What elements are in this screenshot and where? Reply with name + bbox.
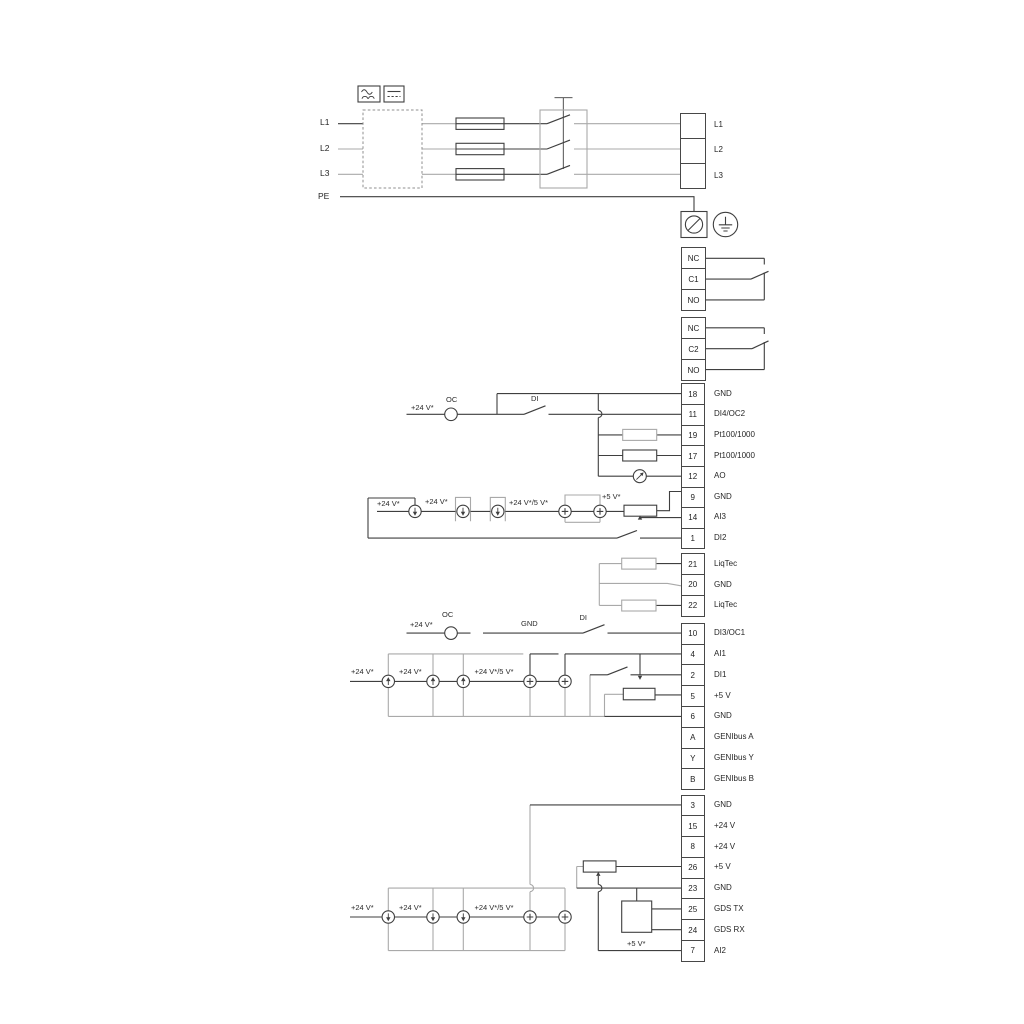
terminal-cell-22: 22 <box>681 595 706 617</box>
annotation-24v-5v: +24 V*/5 V* <box>475 903 514 912</box>
annotation-oc: OC <box>442 610 453 619</box>
terminal-number: 24 <box>688 926 697 935</box>
terminal-cell-20: 20 <box>681 574 706 596</box>
relay1-c1-cell: C1 <box>681 268 706 290</box>
terminal-label-4: AI1 <box>714 649 726 659</box>
terminal-number: 12 <box>688 472 697 481</box>
terminal-label-9: GND <box>714 492 732 502</box>
terminal-label-15: +24 V <box>714 821 735 831</box>
output-label-l3: L3 <box>714 171 723 181</box>
terminal-number: 1 <box>691 534 695 543</box>
annotation-24v: +24 V* <box>399 667 422 676</box>
input-label-pe: PE <box>318 191 329 201</box>
terminal-cell-l1-out <box>680 113 706 139</box>
terminal-cell-l3-out <box>680 163 706 189</box>
annotation-5v: +5 V* <box>627 939 646 948</box>
terminal-cell-6: 6 <box>681 706 706 728</box>
terminal-label-a: GENIbus A <box>714 732 754 742</box>
terminal-label-23: GND <box>714 883 732 893</box>
relay1-no-cell: NO <box>681 289 706 311</box>
relay2-no-label: NO <box>688 366 700 375</box>
terminal-cell-23: 23 <box>681 878 706 900</box>
terminal-label-5: +5 V <box>714 691 731 701</box>
relay1-nc-label: NC <box>688 254 700 263</box>
terminal-cell-y: Y <box>681 748 706 770</box>
relay2-c2-cell: C2 <box>681 338 706 360</box>
annotation-gnd: GND <box>521 619 538 628</box>
relay2-nc-label: NC <box>688 324 700 333</box>
pe-earth-terminals <box>681 212 738 238</box>
io-terminal-block-1: 18 11 19 17 12 9 14 1 <box>681 383 706 549</box>
terminal-cell-b: B <box>681 768 706 790</box>
terminal-number: 8 <box>691 842 695 851</box>
relay2-terminal-block: NC C2 NO <box>681 317 706 381</box>
terminal-number: 17 <box>688 452 697 461</box>
terminal-cell-25: 25 <box>681 898 706 920</box>
io-terminal-block-3: 10 4 2 5 6 A Y B <box>681 623 706 791</box>
terminal-number: B <box>690 775 695 784</box>
terminal-label-b: GENIbus B <box>714 774 754 784</box>
terminal-cell-l2-out <box>680 138 706 164</box>
terminal-number: 3 <box>691 801 695 810</box>
terminal-cell-24: 24 <box>681 919 706 941</box>
terminal-number: 4 <box>691 650 695 659</box>
relay1-no-label: NO <box>688 296 700 305</box>
relay1-nc-cell: NC <box>681 247 706 269</box>
terminal-number: 26 <box>688 863 697 872</box>
relay2-c2-label: C2 <box>688 345 698 354</box>
terminal-label-6: GND <box>714 711 732 721</box>
terminal-cell-2: 2 <box>681 664 706 686</box>
terminal-cell-a: A <box>681 727 706 749</box>
terminal-cell-17: 17 <box>681 445 706 467</box>
annotation-24v: +24 V* <box>411 403 434 412</box>
terminal-label-24: GDS RX <box>714 925 745 935</box>
terminal-label-1: DI2 <box>714 533 726 543</box>
converter-box <box>358 86 422 188</box>
terminal-cell-14: 14 <box>681 507 706 529</box>
annotation-24v: +24 V* <box>399 903 422 912</box>
terminal-number: 11 <box>689 410 697 419</box>
open-collector-icons <box>445 408 458 639</box>
terminal-cell-7: 7 <box>681 940 706 962</box>
terminal-number: 15 <box>688 822 697 831</box>
terminal-number: 2 <box>691 671 695 680</box>
relay2-nc-cell: NC <box>681 317 706 339</box>
terminal-number: 19 <box>688 431 697 440</box>
relay1-terminal-block: NC C1 NO <box>681 247 706 311</box>
terminal-label-y: GENIbus Y <box>714 753 754 763</box>
output-label-l1: L1 <box>714 120 723 130</box>
terminal-number: A <box>690 733 695 742</box>
terminal-label-12: AO <box>714 471 726 481</box>
terminal-label-14: AI3 <box>714 512 726 522</box>
terminal-label-2: DI1 <box>714 670 726 680</box>
terminal-label-19: Pt100/1000 <box>714 430 755 440</box>
terminal-label-20: GND <box>714 580 732 590</box>
annotation-24v: +24 V* <box>377 499 400 508</box>
terminal-number: 9 <box>691 493 695 502</box>
terminal-label-11: DI4/OC2 <box>714 409 745 419</box>
terminal-label-26: +5 V <box>714 862 731 872</box>
wiring-diagram: NC C1 NO NC C2 NO 18 11 19 17 12 9 14 1 … <box>0 0 1024 1024</box>
terminal-cell-10: 10 <box>681 623 706 645</box>
annotation-di: DI <box>580 613 588 622</box>
terminal-cell-5: 5 <box>681 685 706 707</box>
terminal-number: 14 <box>688 513 697 522</box>
terminal-label-18: GND <box>714 389 732 399</box>
io-terminal-block-2: 21 20 22 <box>681 553 706 616</box>
annotation-oc: OC <box>446 395 457 404</box>
terminal-number: 6 <box>691 712 695 721</box>
terminal-cell-12: 12 <box>681 466 706 488</box>
terminal-cell-15: 15 <box>681 815 706 837</box>
annotation-24v: +24 V* <box>425 497 448 506</box>
diagram-canvas <box>0 0 1024 1024</box>
terminal-cell-8: 8 <box>681 836 706 858</box>
annotation-24v: +24 V* <box>351 903 374 912</box>
terminal-number: Y <box>690 754 695 763</box>
terminal-number: 5 <box>691 692 695 701</box>
terminal-number: 22 <box>688 601 697 610</box>
annotation-di: DI <box>531 394 539 403</box>
terminal-cell-4: 4 <box>681 644 706 666</box>
annotation-5v: +5 V* <box>602 492 621 501</box>
power-output-terminal-block <box>680 113 706 189</box>
terminal-label-21: LiqTec <box>714 559 737 569</box>
io-terminal-block-4: 3 15 8 26 23 25 24 7 <box>681 795 706 962</box>
input-label-l2: L2 <box>320 143 329 153</box>
terminal-label-22: LiqTec <box>714 600 737 610</box>
terminal-label-7: AI2 <box>714 946 726 956</box>
terminal-number: 20 <box>688 580 697 589</box>
terminal-number: 23 <box>688 884 697 893</box>
terminal-label-17: Pt100/1000 <box>714 451 755 461</box>
terminal-label-10: DI3/OC1 <box>714 628 745 638</box>
terminal-number: 18 <box>688 390 697 399</box>
annotation-24v: +24 V* <box>351 667 374 676</box>
optional-wires <box>338 124 681 951</box>
terminal-cell-9: 9 <box>681 487 706 509</box>
terminal-label-25: GDS TX <box>714 904 744 914</box>
terminal-cell-3: 3 <box>681 795 706 817</box>
output-label-l2: L2 <box>714 145 723 155</box>
annotation-24v: +24 V* <box>410 620 433 629</box>
gds-sensor-module <box>622 901 652 932</box>
relay2-no-cell: NO <box>681 359 706 381</box>
input-label-l3: L3 <box>320 168 329 178</box>
terminal-cell-11: 11 <box>681 404 706 426</box>
terminal-number: 7 <box>691 946 695 955</box>
terminal-label-3: GND <box>714 800 732 810</box>
terminal-number: 25 <box>688 905 697 914</box>
terminal-number: 21 <box>688 560 697 569</box>
terminal-cell-26: 26 <box>681 857 706 879</box>
annotation-24v-5v: +24 V*/5 V* <box>509 498 548 507</box>
terminal-cell-18: 18 <box>681 383 706 405</box>
terminal-label-8: +24 V <box>714 842 735 852</box>
analog-output-meter-icon <box>633 470 646 483</box>
terminal-cell-21: 21 <box>681 553 706 575</box>
terminal-number: 10 <box>688 629 697 638</box>
terminal-cell-1: 1 <box>681 528 706 550</box>
input-label-l1: L1 <box>320 117 329 127</box>
terminal-cell-19: 19 <box>681 425 706 447</box>
annotation-24v-5v: +24 V*/5 V* <box>475 667 514 676</box>
relay1-c1-label: C1 <box>688 275 698 284</box>
